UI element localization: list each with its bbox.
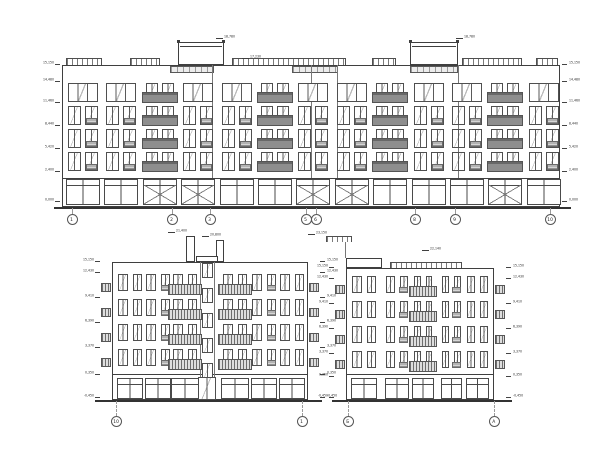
vent-grille	[452, 337, 461, 343]
level-tick	[329, 267, 334, 268]
level-tick	[329, 353, 334, 354]
balcony-striped	[409, 361, 437, 372]
window	[352, 276, 362, 293]
level-tick	[506, 303, 511, 304]
roof-mark: 22,140	[430, 247, 457, 250]
level-mark: -0,450	[301, 394, 328, 397]
window	[467, 326, 475, 343]
level-mark: 6,390	[301, 325, 328, 328]
side-balcony	[335, 285, 345, 294]
elevation-bottom-right: 15,15012,4309,4106,3903,3700,350-0,45015…	[0, 0, 612, 453]
window	[467, 351, 475, 368]
side-balcony	[335, 335, 345, 344]
ground-line	[332, 400, 512, 402]
level-mark: 0,350	[301, 373, 328, 376]
window	[367, 326, 377, 343]
level-mark: 3,370	[301, 350, 328, 353]
window	[480, 276, 488, 293]
level-mark: 9,410	[301, 300, 328, 303]
raised-parapet	[346, 258, 382, 268]
side-balcony	[495, 310, 505, 319]
roof-mark-leader	[308, 234, 315, 235]
axis-leader	[348, 401, 349, 416]
window	[467, 301, 475, 318]
floor-line	[346, 374, 494, 375]
side-balcony	[335, 360, 345, 369]
vent-grille	[452, 312, 461, 318]
level-tick	[506, 397, 511, 398]
storefront	[466, 378, 489, 399]
level-tick	[506, 278, 511, 279]
window	[352, 301, 362, 318]
window	[367, 351, 377, 368]
level-tick	[329, 328, 334, 329]
side-balcony	[495, 335, 505, 344]
window	[467, 276, 475, 293]
axis-label: А	[492, 419, 495, 423]
window	[367, 301, 377, 318]
roof-railing	[390, 262, 462, 268]
vent-grille	[452, 287, 461, 293]
window	[442, 276, 449, 293]
window	[352, 326, 362, 343]
vent-grille	[399, 362, 408, 368]
level-mark: 3,370	[513, 350, 540, 353]
stack-leader	[345, 242, 346, 258]
level-tick	[329, 303, 334, 304]
level-tick	[329, 376, 334, 377]
level-mark: 0,350	[513, 373, 540, 376]
balcony-striped	[409, 286, 437, 297]
window	[386, 351, 395, 368]
level-tick	[506, 328, 511, 329]
window	[480, 326, 488, 343]
side-balcony	[335, 310, 345, 319]
storefront	[385, 378, 409, 399]
window	[480, 351, 488, 368]
level-tick	[506, 376, 511, 377]
window	[442, 301, 449, 318]
window	[386, 301, 395, 318]
roof-mark-leader	[422, 250, 429, 251]
window	[442, 326, 449, 343]
level-tick	[329, 278, 334, 279]
vent-grille	[399, 312, 408, 318]
vent-grille	[452, 362, 461, 368]
axis-leader	[494, 401, 495, 416]
balcony-striped	[409, 311, 437, 322]
drawing-canvas: 15,15014,48011,4608,4405,4202,4000,00015…	[0, 0, 612, 453]
level-tick	[506, 353, 511, 354]
storefront	[441, 378, 462, 399]
level-mark: 15,150	[513, 264, 540, 267]
level-mark: 12,430	[513, 275, 540, 278]
roof-mark: 23,150	[316, 231, 343, 234]
level-mark: -0,450	[513, 394, 540, 397]
window	[386, 326, 395, 343]
level-mark: 15,150	[301, 264, 328, 267]
storefront	[412, 378, 434, 399]
level-mark: 9,410	[513, 300, 540, 303]
axis-label: Б	[346, 419, 349, 423]
window	[386, 276, 395, 293]
side-balcony	[495, 285, 505, 294]
window	[480, 301, 488, 318]
axis-bubble: Б	[343, 416, 354, 427]
window	[442, 351, 449, 368]
level-mark: 6,390	[513, 325, 540, 328]
vent-grille	[399, 287, 408, 293]
storefront	[351, 378, 377, 399]
vent-grille	[399, 337, 408, 343]
window	[367, 276, 377, 293]
side-balcony	[495, 360, 505, 369]
axis-bubble: А	[489, 416, 500, 427]
balcony-striped	[409, 336, 437, 347]
level-tick	[329, 397, 334, 398]
window	[352, 351, 362, 368]
level-mark: 12,430	[301, 275, 328, 278]
level-tick	[506, 267, 511, 268]
roof-stack	[326, 236, 352, 242]
